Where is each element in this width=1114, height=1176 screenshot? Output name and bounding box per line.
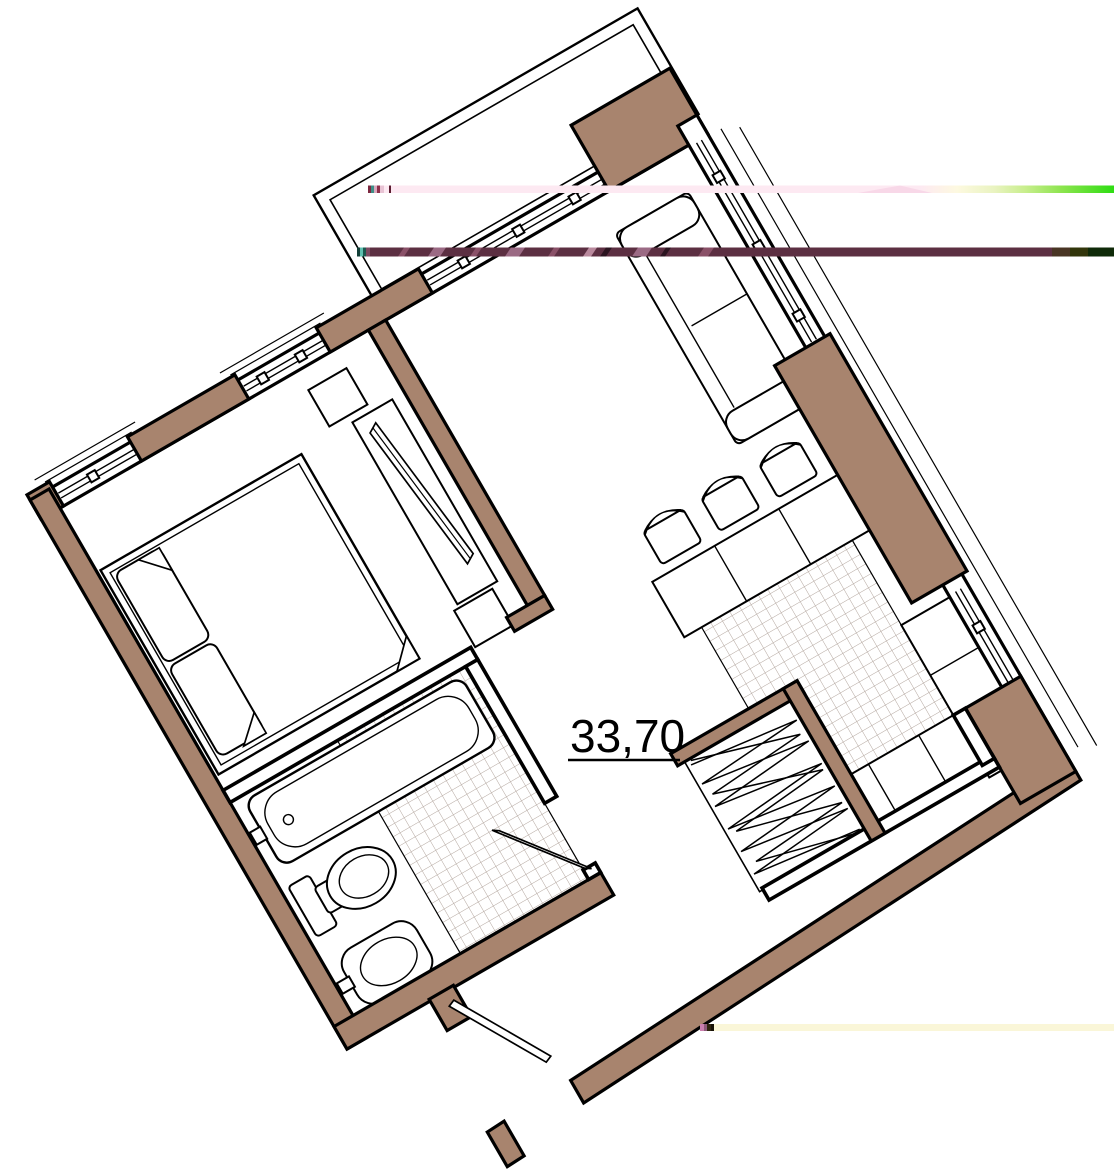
glitch-line-top [368,186,1114,194]
area-value: 33,70 [570,710,685,762]
floor-plan-page: 33,70 [0,0,1114,1176]
wall-pier [127,375,248,461]
glitch-line-bottom [700,1024,1114,1031]
area-label: 33,70 [568,710,685,762]
chair [756,436,818,498]
glitch-line-middle [357,248,1114,257]
south-wall-hook [487,1121,525,1167]
entry-door-leaf [448,972,553,1090]
floor-plan [0,0,1114,1176]
chair [698,469,760,531]
sofa [615,192,810,445]
floor-plan-canvas: 33,70 [0,0,1114,1176]
chair [640,503,702,565]
